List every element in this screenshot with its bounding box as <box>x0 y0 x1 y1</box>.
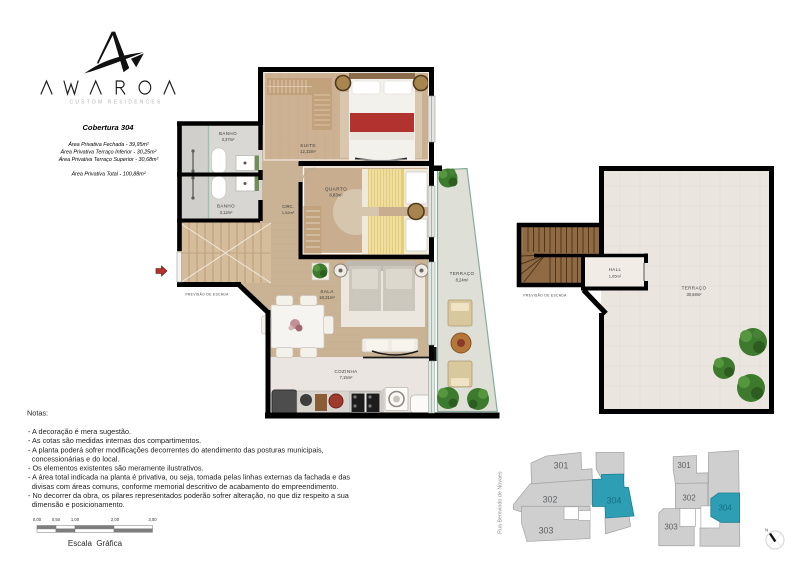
svg-text:3,37m²: 3,37m² <box>222 137 235 142</box>
svg-text:CUSTOM RESIDENCES: CUSTOM RESIDENCES <box>70 100 163 106</box>
svg-text:Área Privativa Total - 100,88m: Área Privativa Total - 100,88m² <box>70 171 145 178</box>
svg-text:Escala Gráfica: Escala Gráfica <box>68 539 123 548</box>
svg-text:Área Privativa Terraço Superio: Área Privativa Terraço Superior - 30,68m… <box>58 156 159 163</box>
svg-text:302: 302 <box>543 495 558 505</box>
svg-text:1,52m²: 1,52m² <box>282 210 295 215</box>
svg-text:SUITE: SUITE <box>300 143 316 148</box>
svg-text:- A planta poderá sofrer modif: - A planta poderá sofrer modificações de… <box>28 445 324 454</box>
svg-text:TERRAÇO: TERRAÇO <box>450 271 475 276</box>
svg-text:3,12m²: 3,12m² <box>220 210 233 215</box>
svg-text:TERRAÇO: TERRAÇO <box>682 286 707 291</box>
svg-text:- A decoração é mera sugestão.: - A decoração é mera sugestão. <box>28 427 131 436</box>
svg-text:CIRC.: CIRC. <box>282 204 293 209</box>
svg-text:1,00: 1,00 <box>71 517 80 522</box>
svg-text:301: 301 <box>677 461 691 470</box>
svg-text:N: N <box>765 528 768 533</box>
svg-text:3,00: 3,00 <box>148 517 157 522</box>
svg-text:18,31m²: 18,31m² <box>319 295 335 300</box>
svg-text:303: 303 <box>539 526 554 536</box>
svg-text:Área Privativa Fechada - 39,95: Área Privativa Fechada - 39,95m² <box>67 141 149 148</box>
svg-text:0,00: 0,00 <box>33 517 42 522</box>
svg-text:1,65m²: 1,65m² <box>609 274 622 279</box>
svg-text:- Os elementos existentes são: - Os elementos existentes são meramente … <box>28 464 204 473</box>
svg-text:concessionárias e do local.: concessionárias e do local. <box>32 455 120 464</box>
svg-text:Rua Bemvindo de Novaes: Rua Bemvindo de Novaes <box>498 471 504 534</box>
svg-text:- A área total indicada na pla: - A área total indicada na planta é priv… <box>28 473 350 482</box>
svg-text:PREVISÃO DE ESCADA: PREVISÃO DE ESCADA <box>185 292 229 297</box>
svg-text:304: 304 <box>607 496 622 506</box>
svg-text:7,15m²: 7,15m² <box>340 375 353 380</box>
svg-text:2,00: 2,00 <box>111 517 120 522</box>
svg-text:301: 301 <box>554 461 569 471</box>
svg-text:Notas:: Notas: <box>27 409 48 418</box>
svg-text:Área Privativa Terraço Inferio: Área Privativa Terraço Inferior - 30,25m… <box>60 148 157 155</box>
svg-text:Cobertura 304: Cobertura 304 <box>82 123 134 132</box>
svg-text:8,83m²: 8,83m² <box>329 193 343 198</box>
svg-text:dimensão e posicionamento.: dimensão e posicionamento. <box>32 500 125 509</box>
svg-text:8,24m²: 8,24m² <box>456 278 469 283</box>
svg-text:302: 302 <box>682 494 696 503</box>
svg-text:304: 304 <box>718 504 732 513</box>
svg-text:- As cotas são medidas interna: - As cotas são medidas internas dos comp… <box>28 436 201 445</box>
svg-text:- No decorrer da obra, os pila: - No decorrer da obra, os pilares repres… <box>28 491 350 500</box>
svg-text:303: 303 <box>664 523 678 532</box>
svg-text:SALA: SALA <box>320 289 334 294</box>
svg-text:12,32m²: 12,32m² <box>300 149 316 154</box>
svg-text:BANHO: BANHO <box>217 204 235 209</box>
svg-text:30,68m²: 30,68m² <box>686 292 702 297</box>
svg-text:HALL: HALL <box>609 267 622 272</box>
svg-text:COZINHA: COZINHA <box>334 369 357 374</box>
svg-text:0,50: 0,50 <box>52 517 61 522</box>
svg-text:divisas com áreas comuns, conf: divisas com áreas comuns, conforme memor… <box>32 482 339 491</box>
svg-text:PREVISÃO DE ESCADA: PREVISÃO DE ESCADA <box>523 293 567 298</box>
svg-text:QUARTO: QUARTO <box>325 187 347 192</box>
svg-text:BANHO: BANHO <box>219 131 237 136</box>
